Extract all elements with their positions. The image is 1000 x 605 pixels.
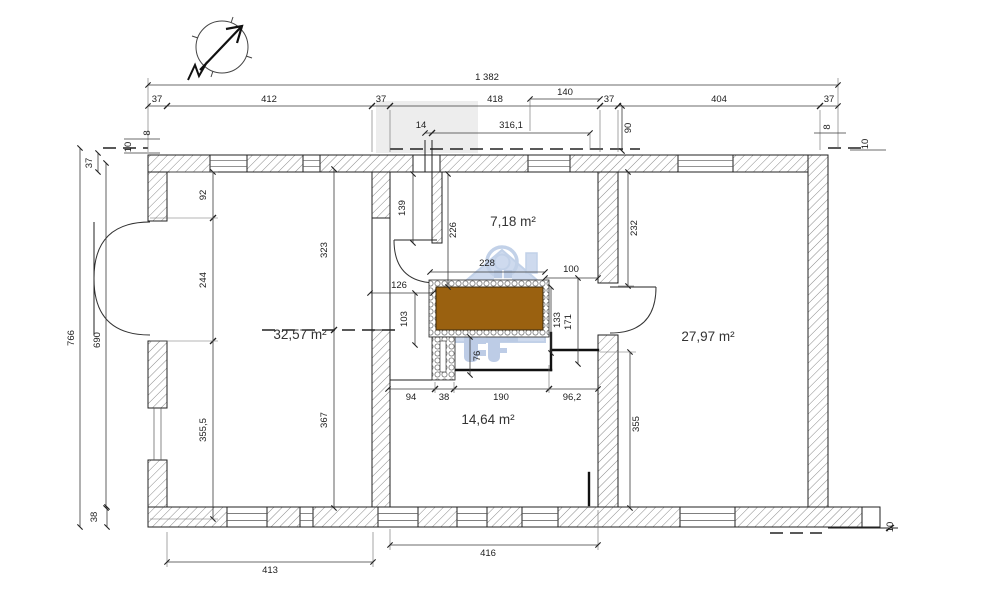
dim-label-404: 404 [711,94,727,105]
dim-right-room: 232 [618,172,640,286]
dim-label-416: 416 [480,548,496,559]
dim-label-90: 90 [623,123,634,134]
dim-label-367: 367 [319,412,330,428]
right-room-door [610,287,656,333]
room-label-bottom-middle: 14,64 m² [461,412,515,427]
dim-label-412: 412 [261,94,277,105]
dim-label-100: 100 [563,264,579,275]
flue-slot [440,341,446,372]
dim-top-chain: 37 412 37 418 37 404 37 [148,94,838,152]
dim-label-br10: 10 [885,522,896,533]
dim-bottom: 413 416 [167,510,598,576]
dim-label-37c: 37 [604,94,615,105]
dim-label-37a: 37 [152,94,163,105]
dim-label-total: 1 382 [475,72,499,83]
dim-label-690: 690 [92,332,103,348]
dim-label-92: 92 [198,190,209,201]
dim-left-side: 766 690 37 38 92 244 355,5 [66,148,218,527]
dim-140: 140 [530,87,600,131]
hall-door [394,240,437,283]
dim-label-76: 76 [472,351,483,362]
dim-label-38: 38 [439,392,450,403]
dim-label-232: 232 [629,220,640,236]
dim-label-190: 190 [493,392,509,403]
floor-plan-svg: 1 382 37 412 37 418 37 404 37 [0,0,1000,605]
dim-label-126: 126 [391,280,407,291]
room-label-top-middle: 7,18 m² [490,214,536,229]
dim-label-226: 226 [448,222,459,238]
dim-90: 90 [622,106,634,151]
dim-label-139: 139 [397,200,408,216]
dim-label-228: 228 [479,258,495,269]
shaded-area [376,101,478,153]
north-arrow-icon [188,17,252,80]
dim-label-tl8: 8 [142,130,153,135]
dim-label-37d: 37 [824,94,835,105]
dim-label-14: 14 [416,120,427,131]
dim-label-316: 316,1 [499,120,523,131]
dim-label-171: 171 [563,314,574,330]
dim-label-38-left: 38 [89,512,100,523]
masonry-stove [429,280,549,380]
dim-label-96-2: 96,2 [563,392,582,403]
dim-label-355-5: 355,5 [198,418,209,442]
dim-label-418: 418 [487,94,503,105]
floor-plan-canvas: 1 382 37 412 37 418 37 404 37 [0,0,1000,605]
dim-label-tr10: 10 [860,139,871,150]
dim-label-323: 323 [319,242,330,258]
dim-label-355: 355 [631,416,642,432]
dim-label-133: 133 [552,312,563,328]
dim-label-766: 766 [66,330,77,346]
dim-label-244: 244 [198,272,209,288]
dim-total-width: 1 382 [148,72,838,152]
dim-label-37b: 37 [376,94,387,105]
dim-label-tl10: 10 [123,142,134,153]
room-label-left: 32,57 m² [273,327,327,342]
room-label-right: 27,97 m² [681,329,735,344]
dim-label-103: 103 [399,311,410,327]
dim-label-tr8: 8 [822,124,833,129]
dim-label-140: 140 [557,87,573,98]
double-entry-door [94,222,150,335]
dim-label-413: 413 [262,565,278,576]
dim-label-37-left: 37 [84,158,95,169]
dim-label-94: 94 [406,392,417,403]
stove-block [436,287,543,330]
